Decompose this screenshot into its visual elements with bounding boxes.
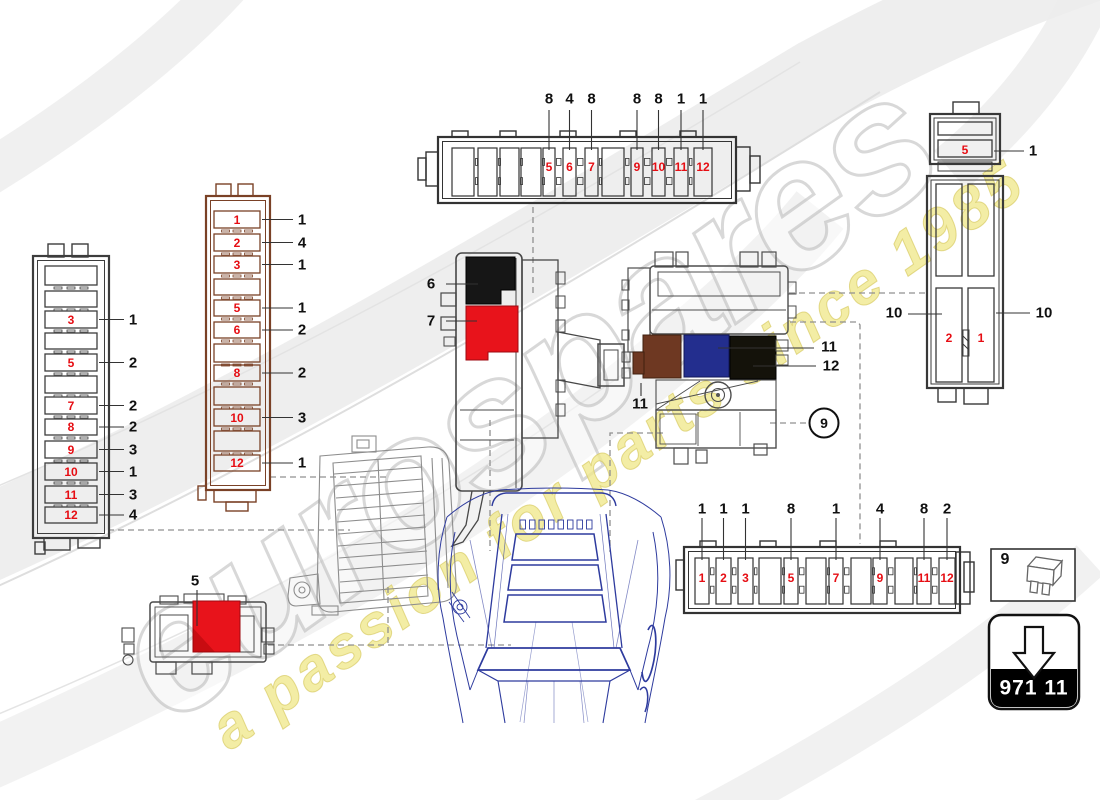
callout-ref: 1 — [298, 301, 306, 316]
fuse-number: 12 — [696, 161, 709, 173]
callout-ref: 11 — [632, 397, 648, 412]
fuse-number: 12 — [940, 572, 953, 584]
callout-ref: 2 — [129, 355, 137, 370]
parts-diagram-page: eurospares a passion for parts since 198… — [0, 0, 1100, 800]
fuse-number: 7 — [833, 572, 840, 584]
callout-ref: 1 — [698, 502, 706, 517]
fuse-number: 5 — [546, 161, 553, 173]
callout-ref: 1 — [129, 464, 137, 479]
callout-ref: 1 — [298, 257, 306, 272]
callout-ref: 12 — [823, 359, 840, 374]
fuse-number: 2 — [234, 237, 241, 249]
fuse-number: 5 — [788, 572, 795, 584]
callout-ref: 1 — [677, 92, 685, 107]
callout-ref: 2 — [129, 420, 137, 435]
fuse-number: 8 — [234, 367, 241, 379]
callout-ref: 1 — [129, 312, 137, 327]
fuse-number: 3 — [68, 314, 75, 326]
callout-ref: 1 — [741, 502, 749, 517]
callout-ref: 2 — [943, 502, 951, 517]
circled-callout-ref: 9 — [820, 416, 828, 430]
callout-ref: 5 — [191, 574, 199, 589]
callout-ref: 1 — [699, 92, 707, 107]
fuse-number: 2 — [720, 572, 727, 584]
callout-ref: 8 — [587, 92, 595, 107]
callout-ref: 4 — [129, 508, 137, 523]
callout-ref: 10 — [1036, 306, 1053, 321]
fuse-number: 1 — [699, 572, 706, 584]
callout-ref: 2 — [129, 398, 137, 413]
callout-ref: 6 — [427, 277, 435, 292]
callout-ref: 7 — [427, 314, 435, 329]
fuse-number: 6 — [566, 161, 573, 173]
fuse-number: 3 — [742, 572, 749, 584]
fuse-number: 7 — [68, 400, 75, 412]
callout-ref: 1 — [298, 456, 306, 471]
labels-layer: 6 7 11 11 12 9 5 5 1 2 1 10 10 9 971 11 … — [0, 0, 1100, 800]
fuse-number: 6 — [234, 324, 241, 336]
callout-ref: 4 — [565, 92, 573, 107]
fuse-number: 10 — [652, 161, 665, 173]
fuse-number: 2 — [946, 332, 953, 344]
callout-ref: 8 — [920, 502, 928, 517]
callout-ref: 1 — [719, 502, 727, 517]
fuse-number: 9 — [877, 572, 884, 584]
callout-ref: 3 — [129, 487, 137, 502]
part-number: 971 11 — [999, 678, 1068, 699]
callout-ref: 1 — [1029, 144, 1037, 159]
fuse-number: 5 — [68, 357, 75, 369]
fuse-number: 8 — [68, 421, 75, 433]
fuse-number: 11 — [65, 489, 78, 501]
fuse-number: 7 — [588, 161, 595, 173]
fuse-number: 12 — [64, 509, 77, 521]
callout-ref: 1 — [832, 502, 840, 517]
fuse-number: 5 — [234, 302, 241, 314]
callout-ref: 4 — [876, 502, 884, 517]
fuse-number: 10 — [64, 466, 77, 478]
callout-ref: 10 — [886, 306, 903, 321]
fuse-number: 9 — [68, 444, 75, 456]
fuse-number: 1 — [234, 214, 241, 226]
callout-ref: 8 — [545, 92, 553, 107]
fuse-number: 10 — [230, 412, 243, 424]
callout-ref: 1 — [298, 212, 306, 227]
callout-ref: 8 — [787, 502, 795, 517]
callout-ref: 8 — [654, 92, 662, 107]
callout-ref: 2 — [298, 366, 306, 381]
callout-ref: 11 — [821, 340, 837, 355]
callout-ref: 8 — [633, 92, 641, 107]
legend-ref: 9 — [1001, 552, 1010, 568]
fuse-number: 5 — [962, 144, 969, 156]
fuse-number: 1 — [978, 332, 985, 344]
fuse-number: 11 — [675, 161, 688, 173]
callout-ref: 4 — [298, 235, 306, 250]
fuse-number: 9 — [634, 161, 641, 173]
fuse-number: 12 — [230, 457, 243, 469]
fuse-number: 3 — [234, 259, 241, 271]
callout-ref: 3 — [298, 410, 306, 425]
fuse-number: 11 — [918, 572, 931, 584]
callout-ref: 2 — [298, 323, 306, 338]
callout-ref: 3 — [129, 442, 137, 457]
